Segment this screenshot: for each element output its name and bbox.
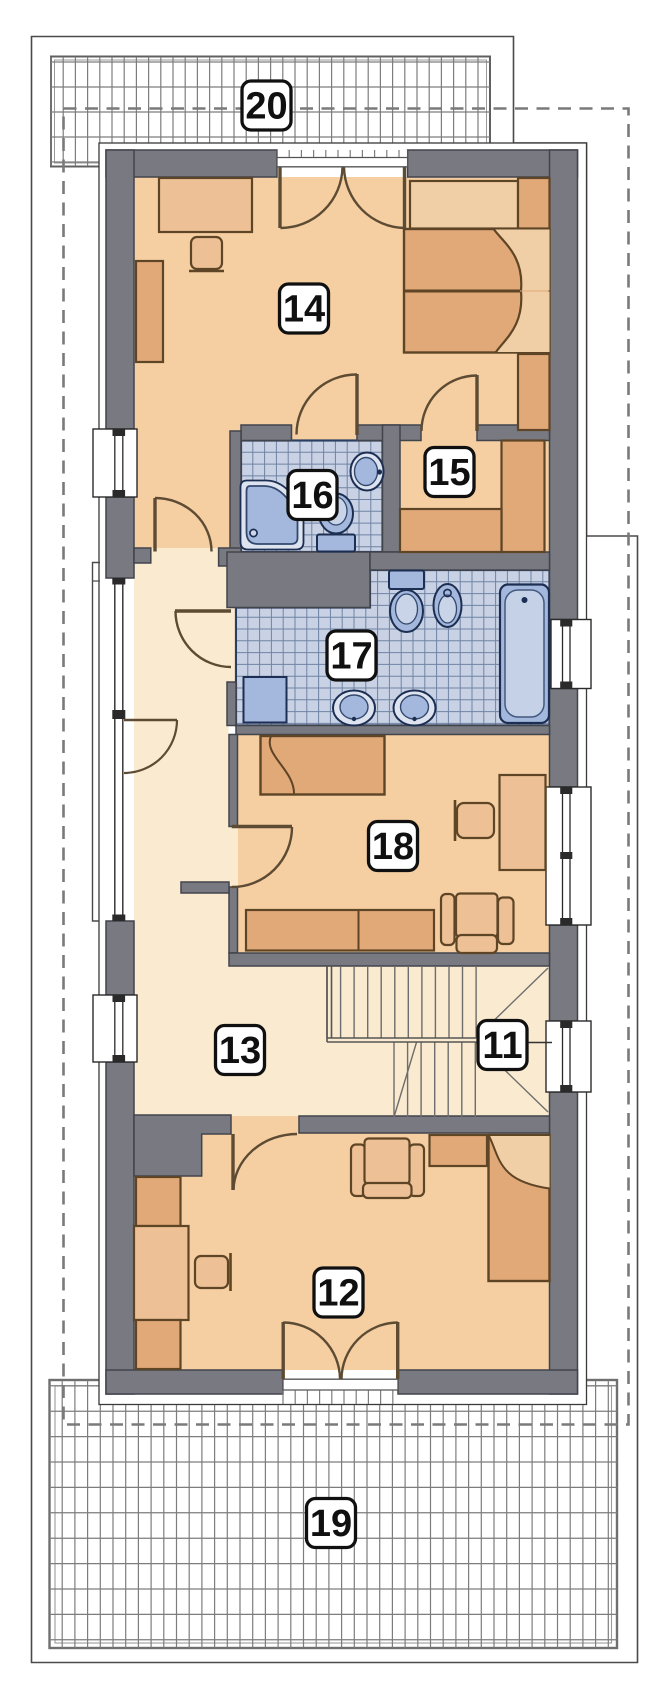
svg-text:12: 12 — [317, 1273, 359, 1315]
svg-text:17: 17 — [330, 636, 372, 678]
svg-text:18: 18 — [372, 826, 414, 868]
svg-text:20: 20 — [245, 86, 287, 128]
svg-text:14: 14 — [283, 289, 325, 331]
svg-text:16: 16 — [291, 475, 333, 517]
svg-text:11: 11 — [482, 1025, 522, 1067]
svg-text:15: 15 — [428, 452, 470, 494]
svg-text:19: 19 — [310, 1503, 352, 1545]
svg-text:13: 13 — [219, 1030, 261, 1072]
